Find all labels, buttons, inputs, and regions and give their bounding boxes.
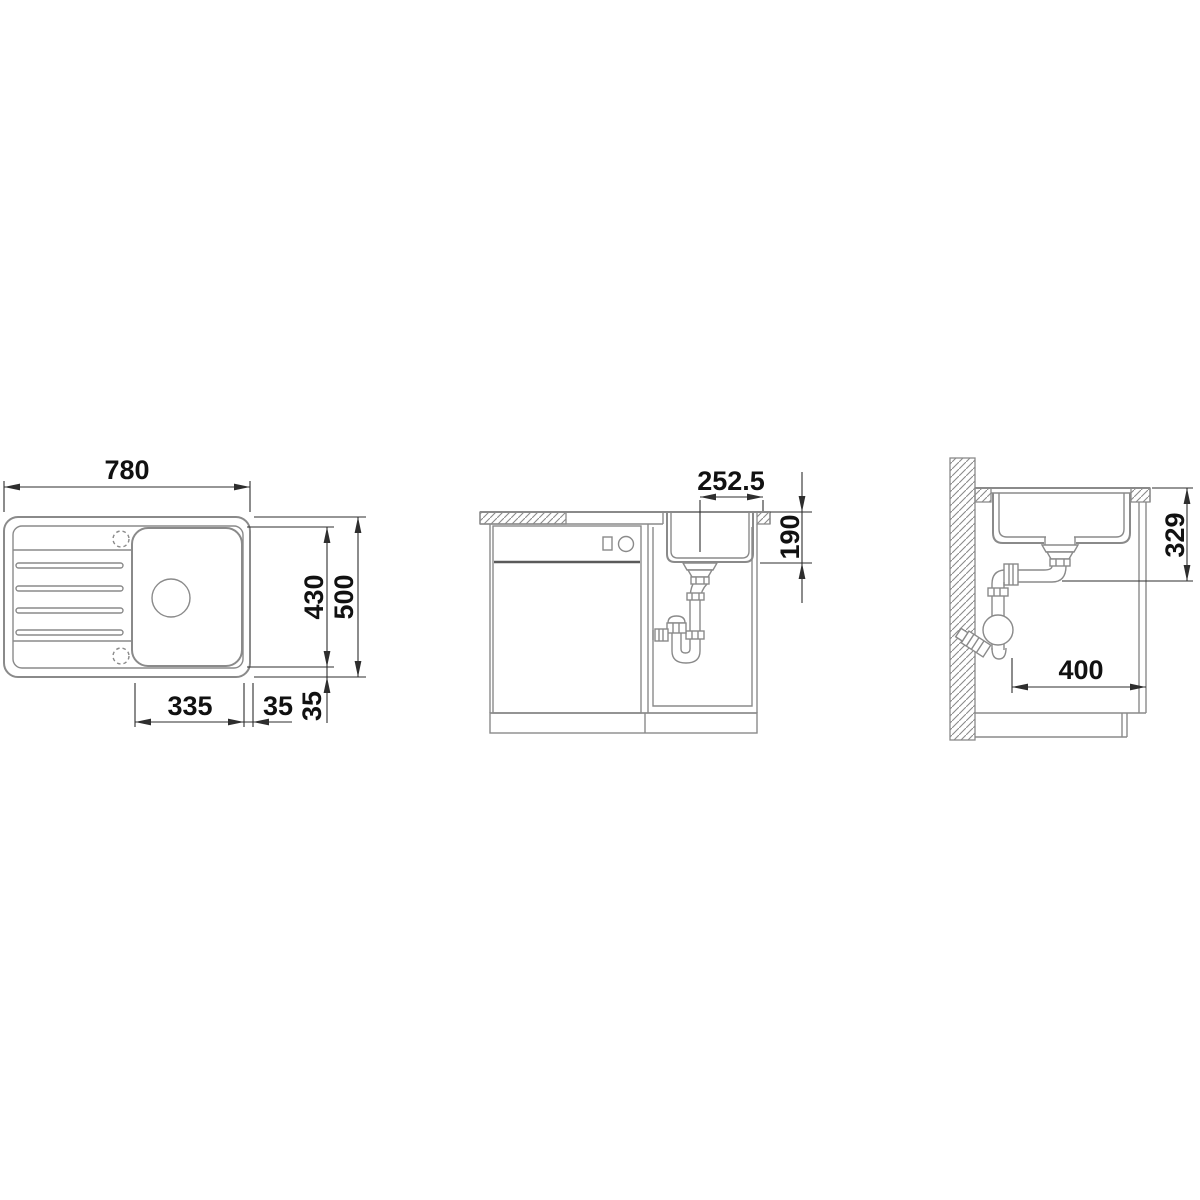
sink-outer-edge [4,517,250,677]
dim-label-190: 190 [775,514,805,559]
drain-hole [152,579,190,617]
dim-label-329: 329 [1160,512,1190,557]
wall-section [950,458,975,740]
appliance-front [493,526,641,713]
drainboard-groove [16,563,123,568]
strainer-nut [1050,559,1070,566]
technical-drawing-page: 780 430 35 500 [0,0,1200,1200]
drainboard-groove [16,608,123,613]
sink-inner-rim [13,526,243,668]
tap-hole-top [113,531,129,547]
dim-label-252.5: 252.5 [697,466,765,496]
strainer-cup [1047,552,1073,559]
horizontal-pipe [1018,566,1066,582]
plinth [490,713,757,733]
dim-label-400: 400 [1058,655,1103,685]
control-button [603,537,612,550]
pipe-nut [1004,564,1018,585]
worktop-section-hatch [757,512,770,524]
strainer-cup [688,570,712,577]
top-view: 780 430 35 500 [4,455,366,727]
control-knob [619,537,634,552]
dim-label-430: 430 [299,574,329,619]
arrowhead [4,484,20,491]
arrowhead [234,484,250,491]
drain-trap-front [653,563,717,663]
bowl-inner-wall-side [1074,493,1124,537]
dim-label-780: 780 [104,455,149,485]
trap-body [983,615,1013,645]
dim-label-35-vertical: 35 [297,691,327,721]
dim-overall-width: 780 [4,455,250,512]
pipe-collar [686,631,704,639]
worktop-section-hatch [1131,488,1150,502]
strainer-flange [1042,545,1078,552]
worktop-section-hatch [975,488,991,502]
bowl-outer-wall [667,513,753,562]
dim-clearance: 400 [1012,655,1146,693]
bowl-inner-wall-side [999,493,1046,537]
outlet-nut [655,629,668,641]
dim-outlet-height: 329 [1062,488,1193,581]
strainer-nut [691,577,709,584]
bowl-outline-top [132,528,242,666]
dim-drain-offset: 252.5 [697,466,765,511]
side-view: 329 400 [950,458,1193,740]
dim-label-500: 500 [329,574,359,619]
trap-cap [668,616,685,623]
worktop-section-hatch [480,512,566,524]
drawing-svg: 780 430 35 500 [0,0,1200,1200]
drainboard-groove [16,586,123,591]
front-view: 252.5 190 [480,466,812,733]
trap-nut [667,623,686,633]
pipe-collar [988,588,1008,596]
strainer-flange [683,563,717,570]
drainboard-groove [16,630,123,635]
dim-bowl-height: 190 [760,472,812,603]
dim-label-35-horizontal: 35 [263,691,293,721]
dim-bowl-width: 335 35 [135,683,293,727]
pipe-collar [687,593,704,600]
bowl-inner-wall [671,513,749,558]
dim-label-335: 335 [167,691,212,721]
tap-hole-bottom [113,648,129,664]
